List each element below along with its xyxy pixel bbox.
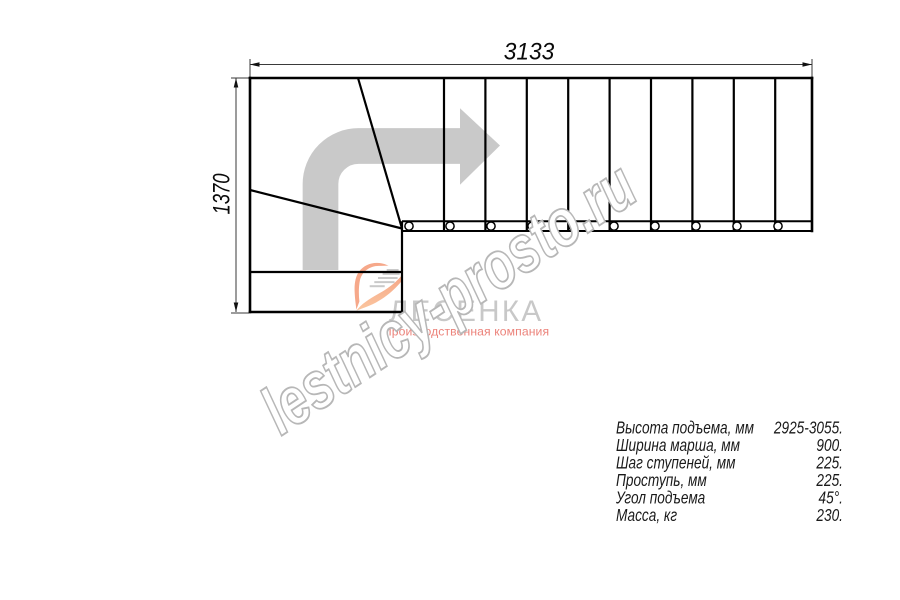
svg-text:Шаг ступеней, мм: Шаг ступеней, мм [616, 454, 736, 473]
svg-text:1370: 1370 [209, 173, 236, 215]
svg-text:Масса, кг: Масса, кг [616, 507, 677, 526]
svg-text:Проступь, мм: Проступь, мм [616, 472, 707, 491]
svg-text:2925-3055.: 2925-3055. [773, 419, 843, 438]
svg-text:Угол подъема: Угол подъема [615, 489, 705, 508]
svg-text:45°.: 45°. [819, 489, 843, 508]
svg-text:225.: 225. [816, 454, 843, 473]
svg-text:225.: 225. [816, 472, 843, 491]
svg-text:900.: 900. [816, 437, 843, 456]
svg-text:3133: 3133 [504, 39, 555, 66]
svg-text:230.: 230. [816, 507, 843, 526]
svg-text:Ширина марша, мм: Ширина марша, мм [616, 437, 740, 456]
svg-text:Высота подъема, мм: Высота подъема, мм [616, 419, 754, 438]
